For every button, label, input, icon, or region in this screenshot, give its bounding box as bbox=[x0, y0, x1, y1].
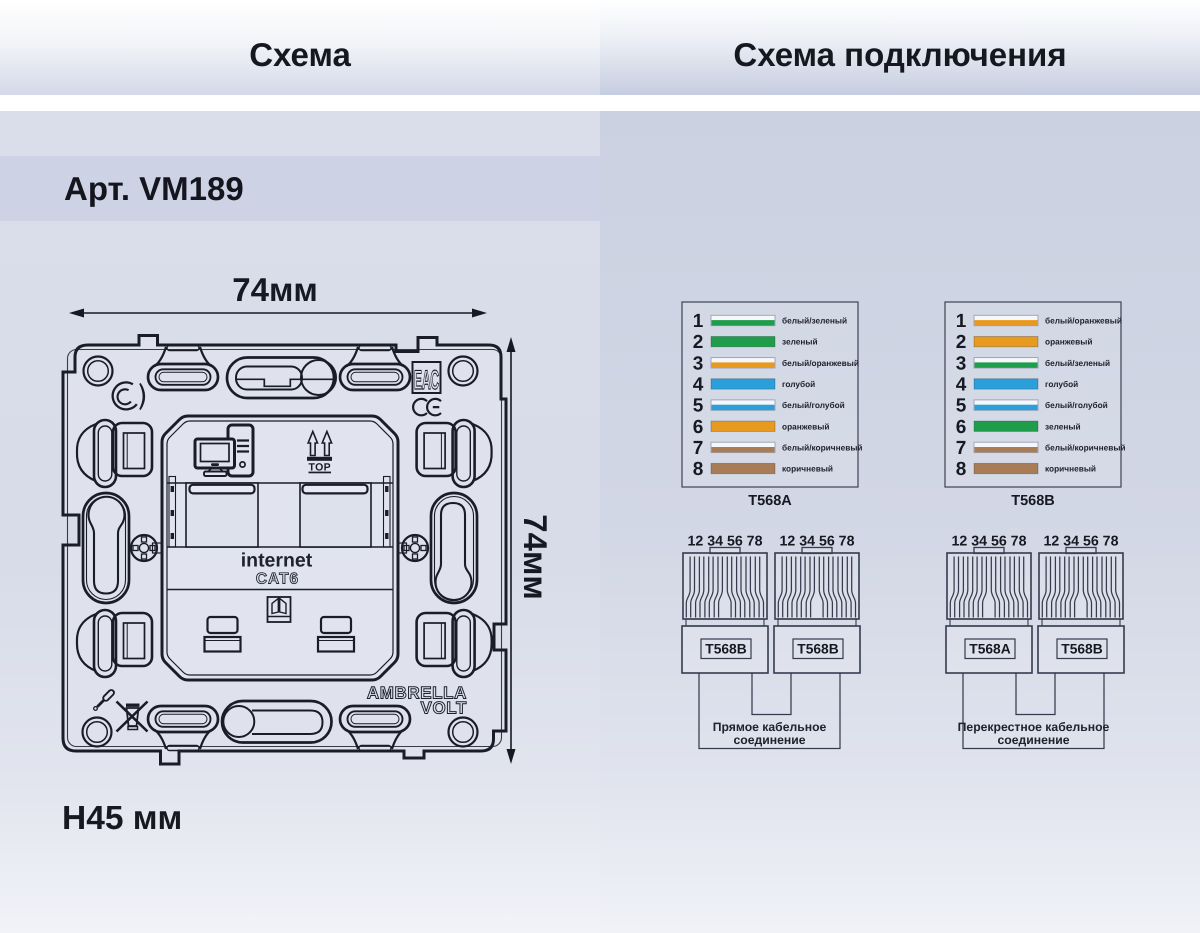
svg-text:2: 2 bbox=[693, 332, 704, 353]
svg-text:белый/коричневый: белый/коричневый bbox=[782, 442, 863, 452]
svg-text:74мм: 74мм bbox=[232, 271, 318, 308]
svg-text:T568B: T568B bbox=[705, 642, 746, 657]
svg-text:1: 1 bbox=[693, 311, 704, 332]
svg-text:5: 5 bbox=[693, 396, 704, 417]
svg-text:VOLT: VOLT bbox=[421, 699, 467, 718]
svg-text:белый/оранжевый: белый/оранжевый bbox=[1045, 316, 1122, 326]
svg-text:Перекрестное кабельное: Перекрестное кабельное bbox=[958, 720, 1110, 734]
svg-text:1: 1 bbox=[956, 311, 967, 332]
svg-text:коричневый: коричневый bbox=[1045, 464, 1096, 474]
svg-text:3: 3 bbox=[693, 353, 704, 374]
svg-text:T568B: T568B bbox=[1061, 642, 1102, 657]
svg-text:голубой: голубой bbox=[782, 379, 815, 389]
svg-text:CAT6: CAT6 bbox=[256, 571, 299, 588]
svg-text:8: 8 bbox=[956, 459, 967, 480]
svg-text:коричневый: коричневый bbox=[782, 464, 833, 474]
svg-text:ЕАС: ЕАС bbox=[414, 365, 439, 395]
svg-text:белый/коричневый: белый/коричневый bbox=[1045, 442, 1126, 452]
svg-text:T568B: T568B bbox=[797, 642, 838, 657]
svg-text:6: 6 bbox=[956, 417, 967, 438]
svg-text:3: 3 bbox=[956, 353, 967, 374]
svg-text:7: 7 bbox=[956, 438, 967, 459]
svg-text:оранжевый: оранжевый bbox=[782, 421, 829, 431]
svg-text:зеленый: зеленый bbox=[782, 337, 818, 347]
svg-text:7: 7 bbox=[693, 438, 704, 459]
svg-text:4: 4 bbox=[956, 374, 967, 395]
svg-text:Арт. VM189: Арт. VM189 bbox=[64, 170, 244, 207]
svg-text:Прямое кабельное: Прямое кабельное bbox=[713, 720, 827, 734]
svg-text:голубой: голубой bbox=[1045, 379, 1078, 389]
svg-text:белый/зеленый: белый/зеленый bbox=[1045, 358, 1110, 368]
svg-text:Схема: Схема bbox=[249, 36, 351, 73]
svg-text:74мм: 74мм bbox=[517, 514, 554, 600]
svg-text:2: 2 bbox=[956, 332, 967, 353]
svg-text:белый/голубой: белый/голубой bbox=[782, 400, 845, 410]
svg-text:internet: internet bbox=[241, 550, 313, 572]
svg-text:соединение: соединение bbox=[997, 733, 1069, 747]
svg-text:белый/голубой: белый/голубой bbox=[1045, 400, 1108, 410]
svg-text:оранжевый: оранжевый bbox=[1045, 337, 1092, 347]
svg-text:T568A: T568A bbox=[748, 493, 792, 509]
svg-text:8: 8 bbox=[693, 459, 704, 480]
svg-text:6: 6 bbox=[693, 417, 704, 438]
svg-text:5: 5 bbox=[956, 396, 967, 417]
svg-text:зеленый: зеленый bbox=[1045, 421, 1081, 431]
svg-text:Схема подключения: Схема подключения bbox=[733, 36, 1066, 73]
svg-text:T568A: T568A bbox=[969, 642, 1010, 657]
svg-text:TOP: TOP bbox=[308, 461, 331, 473]
svg-text:белый/зеленый: белый/зеленый bbox=[782, 316, 847, 326]
svg-text:H45 мм: H45 мм bbox=[62, 800, 182, 837]
svg-text:T568B: T568B bbox=[1011, 493, 1055, 509]
svg-text:4: 4 bbox=[693, 374, 704, 395]
svg-text:белый/оранжевый: белый/оранжевый bbox=[782, 358, 859, 368]
svg-text:соединение: соединение bbox=[733, 733, 805, 747]
